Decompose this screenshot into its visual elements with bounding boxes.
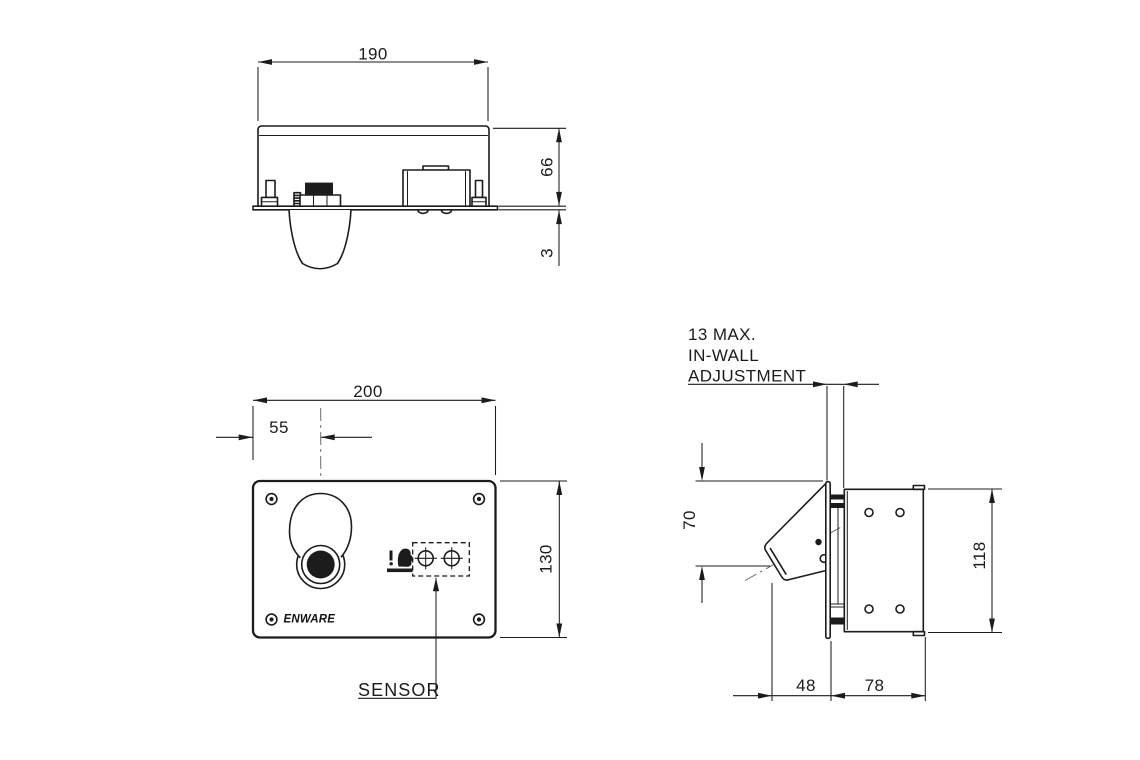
front-spout (290, 494, 352, 589)
side-mounting-hardware (830, 495, 846, 625)
dim-height-66: 66 (493, 128, 566, 206)
top-view-left-bolt (262, 181, 278, 207)
drawing-canvas: 190 (0, 0, 1140, 760)
inwall-body-outline (844, 489, 923, 631)
dim-label-48: 48 (796, 676, 816, 695)
dim-label-66: 66 (538, 157, 557, 177)
spout-outlet-hole (307, 551, 335, 579)
dim-label-78: 78 (865, 676, 885, 695)
dim-label-70: 70 (680, 510, 699, 530)
dim-plate-3: 3 (499, 210, 567, 266)
spout-cone-outline (290, 494, 352, 558)
side-spout-sensor-dot (815, 539, 821, 545)
sensor-label: SENSOR (358, 680, 441, 700)
dim-label-190: 190 (358, 45, 388, 64)
enware-logo: ENWARE (284, 614, 336, 626)
top-view: 190 (253, 45, 566, 269)
technical-drawing-page: 190 (0, 0, 1140, 760)
inwall-body-top-clip (913, 486, 924, 490)
note-line-1: 13 MAX. (688, 325, 756, 344)
inwall-body-bottom-clip (913, 632, 924, 636)
top-view-plate-feet (418, 210, 452, 213)
top-view-sensor-module (403, 166, 470, 206)
dim-label-118: 118 (970, 541, 989, 569)
dim-width-190: 190 (258, 45, 488, 122)
top-view-valve-fitting (300, 183, 341, 207)
top-view-mounting-plate (253, 206, 498, 210)
dim-label-3: 3 (538, 248, 557, 258)
top-view-spout (289, 210, 351, 269)
dim-height-130: 130 (500, 481, 567, 638)
dim-label-130: 130 (537, 544, 556, 574)
in-wall-adjustment-note: 13 MAX. IN-WALL ADJUSTMENT (688, 325, 879, 488)
note-line-2: IN-WALL (688, 346, 759, 365)
side-inwall-body (844, 486, 924, 636)
note-line-3: ADJUSTMENT (688, 367, 806, 386)
front-view: 200 55 (216, 382, 567, 700)
dim-offset-55: 55 (216, 418, 372, 440)
dim-label-200: 200 (353, 382, 383, 401)
side-wall-plate (826, 482, 830, 639)
side-spout (765, 483, 828, 580)
dim-label-55: 55 (269, 418, 289, 437)
side-view: 13 MAX. IN-WALL ADJUSTMENT (680, 325, 1002, 701)
side-spout-outline (765, 483, 826, 580)
dim-box-height-118: 118 (928, 489, 1002, 633)
top-view-right-bolt (472, 181, 486, 207)
dim-width-200: 200 (253, 382, 496, 475)
